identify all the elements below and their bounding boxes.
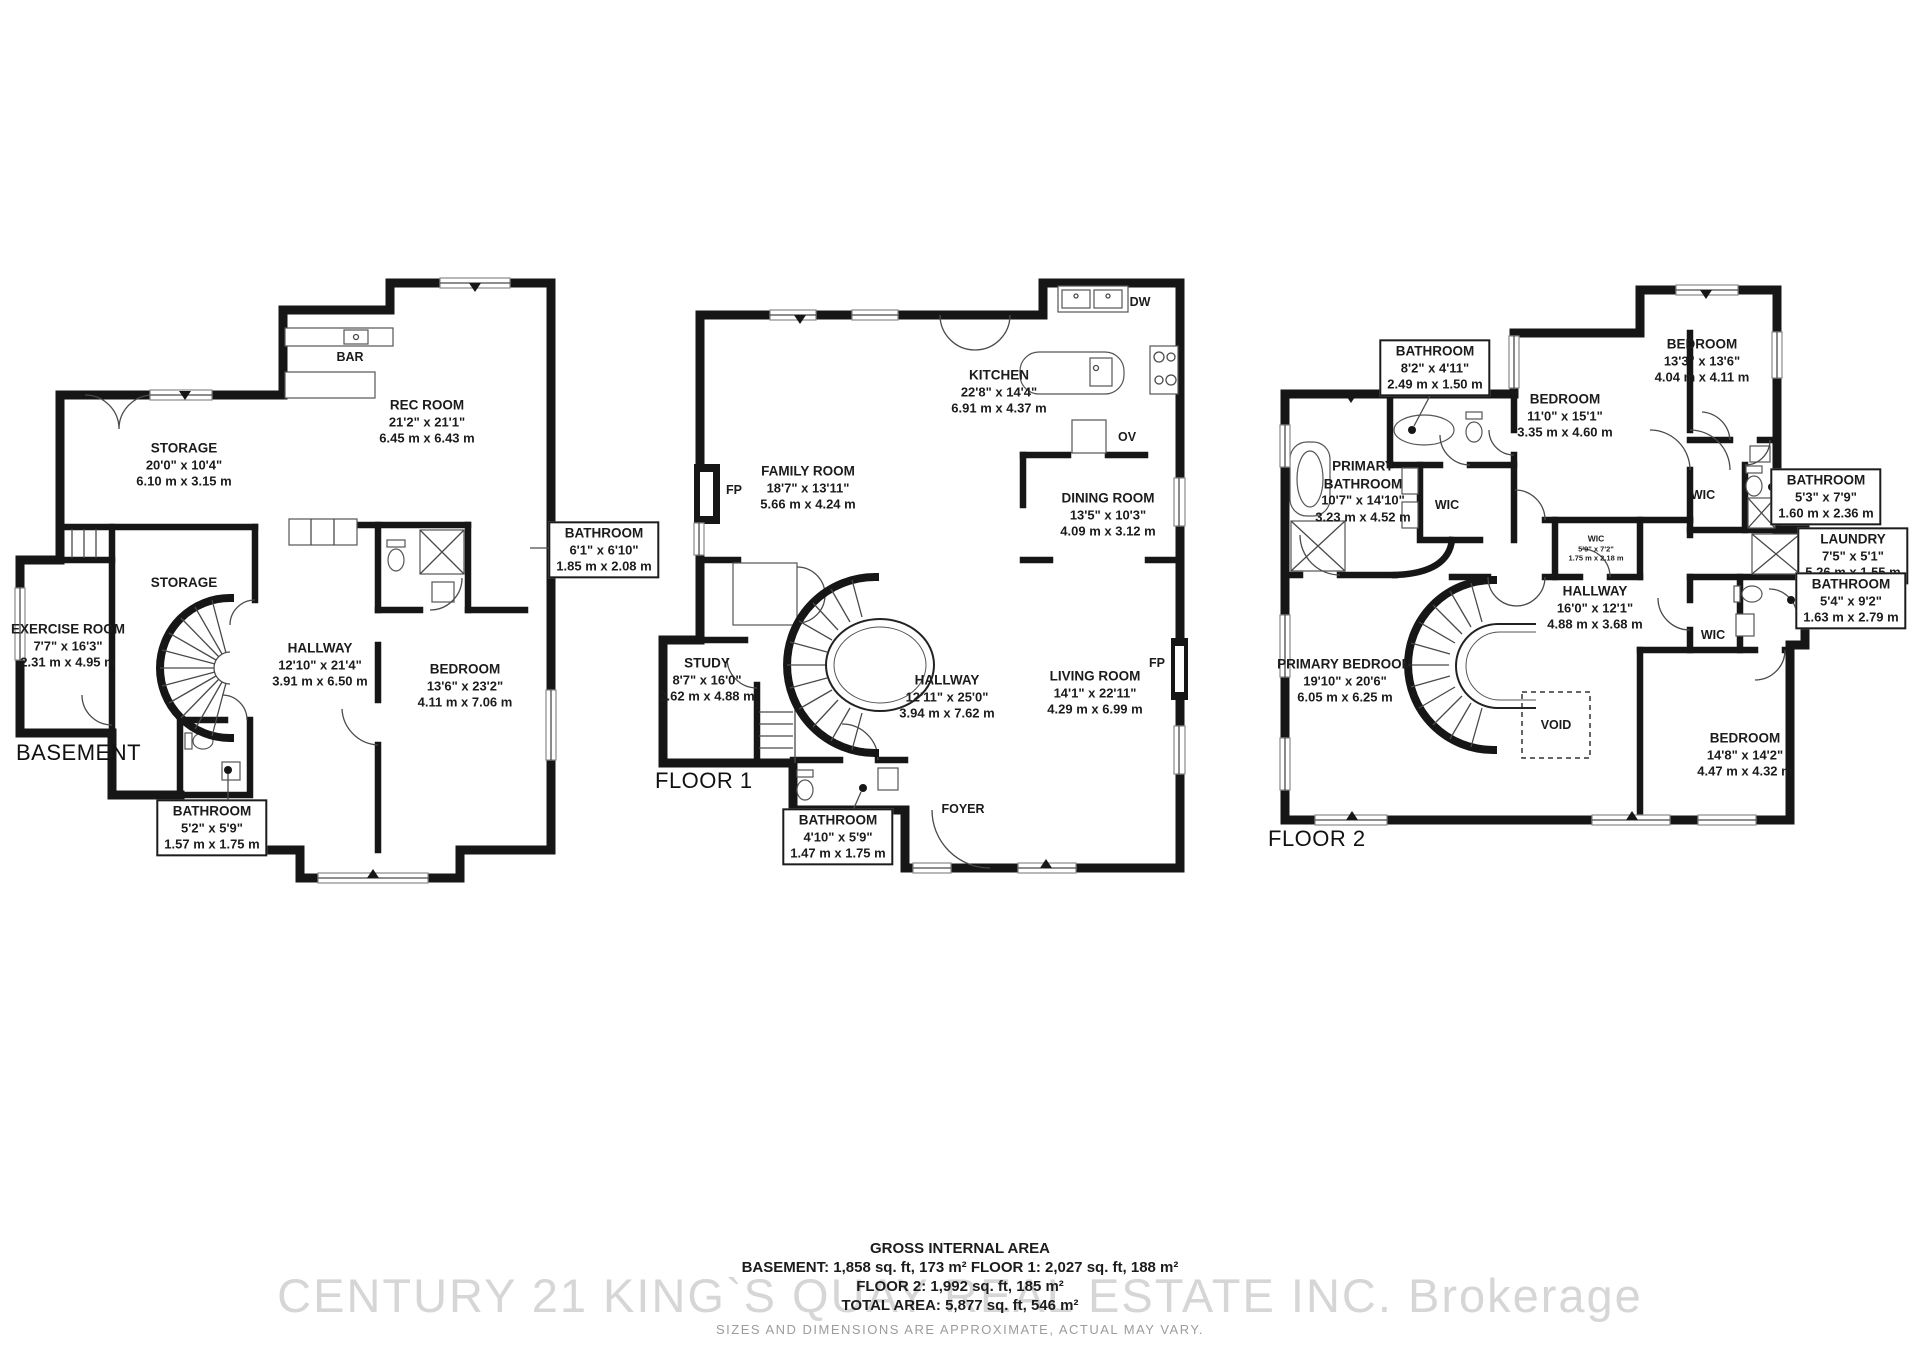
oven-label: OV [1118, 430, 1136, 444]
wic-label-right: WIC [1691, 488, 1715, 502]
callout-basement-bathroom-2: BATHROOM5'2" x 5'9"1.57 m x 1.75 m [156, 799, 267, 856]
void-label: VOID [1541, 718, 1572, 732]
callout-floor2-bathroom-top: BATHROOM8'2" x 4'11"2.49 m x 1.50 m [1379, 339, 1490, 396]
room-label-living-room: LIVING ROOM14'1" x 22'11"4.29 m x 6.99 m [1047, 667, 1142, 718]
wic-label-bottom: WIC [1701, 628, 1725, 642]
floor2-tag: FLOOR 2 [1268, 826, 1366, 852]
room-label-study: STUDY8'7" x 16'0"2.62 m x 4.88 m [659, 654, 754, 705]
basement-plan [15, 278, 567, 883]
area-summary: CENTURY 21 KING`S QUAY REAL ESTATE INC. … [0, 1240, 1920, 1337]
room-label-bedroom-13: BEDROOM13'3" x 13'6"4.04 m x 4.11 m [1655, 335, 1750, 386]
bar-label: BAR [336, 350, 363, 364]
disclaimer: SIZES AND DIMENSIONS ARE APPROXIMATE, AC… [0, 1322, 1920, 1337]
room-label-primary-bedroom: PRIMARY BEDROOM19'10" x 20'6"6.05 m x 6.… [1277, 655, 1413, 706]
basement-tag: BASEMENT [16, 740, 141, 766]
callout-floor2-bathroom-53: BATHROOM5'3" x 7'9"1.60 m x 2.36 m [1770, 468, 1881, 525]
callout-floor1-bathroom: BATHROOM4'10" x 5'9"1.47 m x 1.75 m [782, 808, 893, 865]
foyer-label: FOYER [941, 802, 984, 816]
area-line-total: TOTAL AREA: 5,877 sq. ft, 546 m² [0, 1297, 1920, 1314]
room-label-family-room: FAMILY ROOM18'7" x 13'11"5.66 m x 4.24 m [760, 462, 855, 513]
area-line-basement-floor1: BASEMENT: 1,858 sq. ft, 173 m² FLOOR 1: … [0, 1259, 1920, 1276]
room-label-floor1-hallway: HALLWAY12'11" x 25'0"3.94 m x 7.62 m [899, 671, 994, 722]
room-label-floor2-hallway: HALLWAY16'0" x 12'1"4.88 m x 3.68 m [1547, 582, 1642, 633]
room-label-bedroom-14: BEDROOM14'8" x 14'2"4.47 m x 4.32 m [1697, 729, 1792, 780]
room-label-primary-bathroom: PRIMARY BATHROOM10'7" x 14'10"3.23 m x 4… [1311, 458, 1415, 527]
wic-label-center: WIC [1435, 498, 1459, 512]
gross-area-title: GROSS INTERNAL AREA [0, 1240, 1920, 1257]
room-label-kitchen: KITCHEN22'8" x 14'4"6.91 m x 4.37 m [951, 366, 1046, 417]
room-label-wic-dims: WIC5'9" x 7'2"1.75 m x 2.18 m [1568, 533, 1623, 562]
room-label-storage-1: STORAGE20'0" x 10'4"6.10 m x 3.15 m [136, 439, 231, 490]
room-label-exercise-room: EXERCISE ROOM7'7" x 16'3"2.31 m x 4.95 m [11, 620, 125, 671]
room-label-basement-bedroom: BEDROOM13'6" x 23'2"4.11 m x 7.06 m [418, 660, 513, 711]
callout-floor2-bathroom-54: BATHROOM5'4" x 9'2"1.63 m x 2.79 m [1795, 572, 1906, 629]
callout-basement-bathroom: BATHROOM6'1" x 6'10"1.85 m x 2.08 m [548, 521, 659, 578]
room-label-storage-2: STORAGE [151, 574, 218, 592]
floor1-tag: FLOOR 1 [655, 768, 753, 794]
dishwasher-label: DW [1130, 295, 1151, 309]
room-label-bedroom-11: BEDROOM11'0" x 15'1"3.35 m x 4.60 m [1517, 390, 1612, 441]
brokerage-watermark: CENTURY 21 KING`S QUAY REAL ESTATE INC. … [277, 1268, 1643, 1323]
room-label-dining-room: DINING ROOM13'5" x 10'3"4.09 m x 3.12 m [1060, 489, 1155, 540]
room-label-rec-room: REC ROOM21'2" x 21'1"6.45 m x 6.43 m [379, 396, 474, 447]
fireplace-label-right: FP [1149, 656, 1165, 670]
room-label-basement-hallway: HALLWAY12'10" x 21'4"3.91 m x 6.50 m [272, 639, 367, 690]
area-line-floor2: FLOOR 2: 1,992 sq. ft, 185 m² [0, 1278, 1920, 1295]
fireplace-label-left: FP [726, 483, 742, 497]
floorplan-sheet: BAR REC ROOM21'2" x 21'1"6.45 m x 6.43 m… [0, 0, 1920, 1358]
